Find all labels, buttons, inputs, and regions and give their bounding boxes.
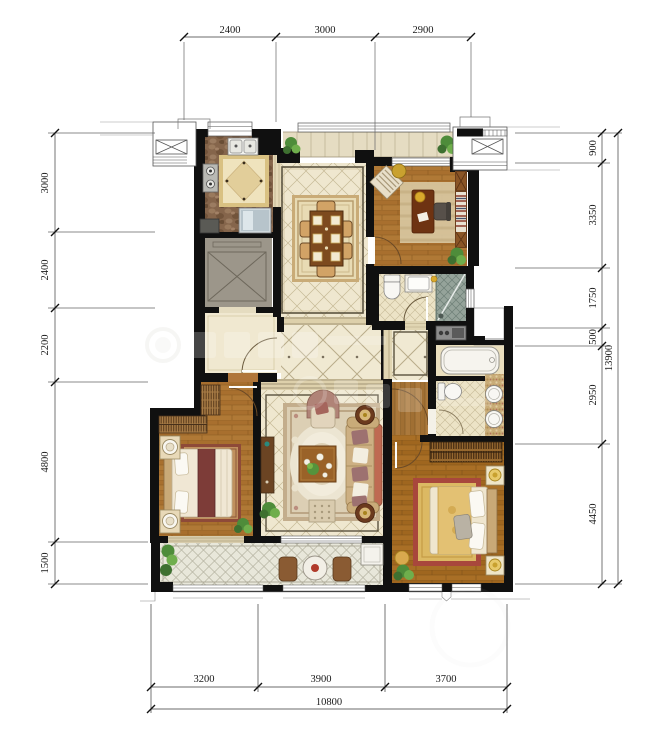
svg-text:3700: 3700	[436, 674, 457, 685]
svg-text:4450: 4450	[588, 504, 599, 525]
svg-text:3900: 3900	[311, 674, 332, 685]
svg-text:2950: 2950	[588, 385, 599, 406]
svg-text:13900: 13900	[604, 345, 615, 371]
svg-text:1750: 1750	[588, 288, 599, 309]
svg-text:500: 500	[588, 329, 599, 345]
svg-text:3000: 3000	[40, 173, 51, 194]
svg-text:900: 900	[588, 140, 599, 156]
svg-text:3000: 3000	[315, 25, 336, 36]
svg-text:4800: 4800	[40, 452, 51, 473]
svg-text:3200: 3200	[194, 674, 215, 685]
svg-text:3350: 3350	[588, 205, 599, 226]
svg-text:2200: 2200	[40, 335, 51, 356]
svg-text:2400: 2400	[40, 260, 51, 281]
svg-text:1500: 1500	[40, 553, 51, 574]
svg-text:10800: 10800	[316, 697, 342, 708]
svg-text:2400: 2400	[220, 25, 241, 36]
svg-text:2900: 2900	[413, 25, 434, 36]
